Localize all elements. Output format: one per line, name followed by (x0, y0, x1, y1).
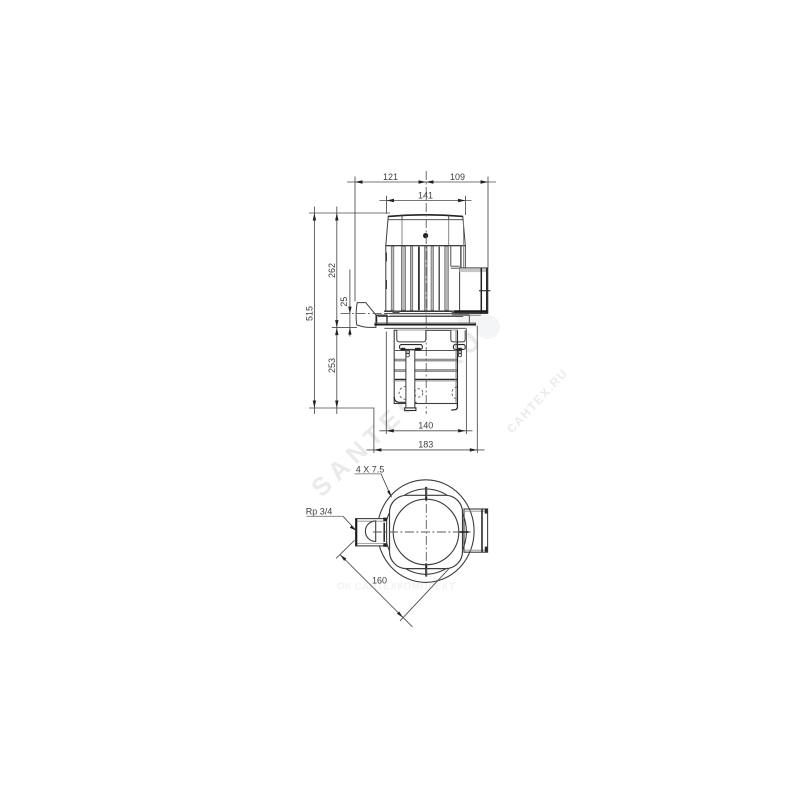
svg-text:141: 141 (418, 191, 433, 201)
svg-text:25: 25 (339, 297, 349, 307)
svg-text:262: 262 (327, 263, 337, 278)
svg-text:183: 183 (418, 440, 433, 450)
svg-text:Rp 3/4: Rp 3/4 (306, 507, 333, 517)
svg-text:140: 140 (418, 420, 433, 430)
svg-text:ОК САНТЕХКОМПЛЕКТ: ОК САНТЕХКОМПЛЕКТ (337, 582, 455, 593)
svg-text:253: 253 (327, 358, 337, 373)
svg-text:121: 121 (383, 172, 398, 182)
svg-text:515: 515 (304, 306, 314, 321)
svg-text:160: 160 (372, 576, 387, 586)
svg-text:109: 109 (450, 172, 465, 182)
svg-text:4 X 7.5: 4 X 7.5 (356, 464, 385, 474)
